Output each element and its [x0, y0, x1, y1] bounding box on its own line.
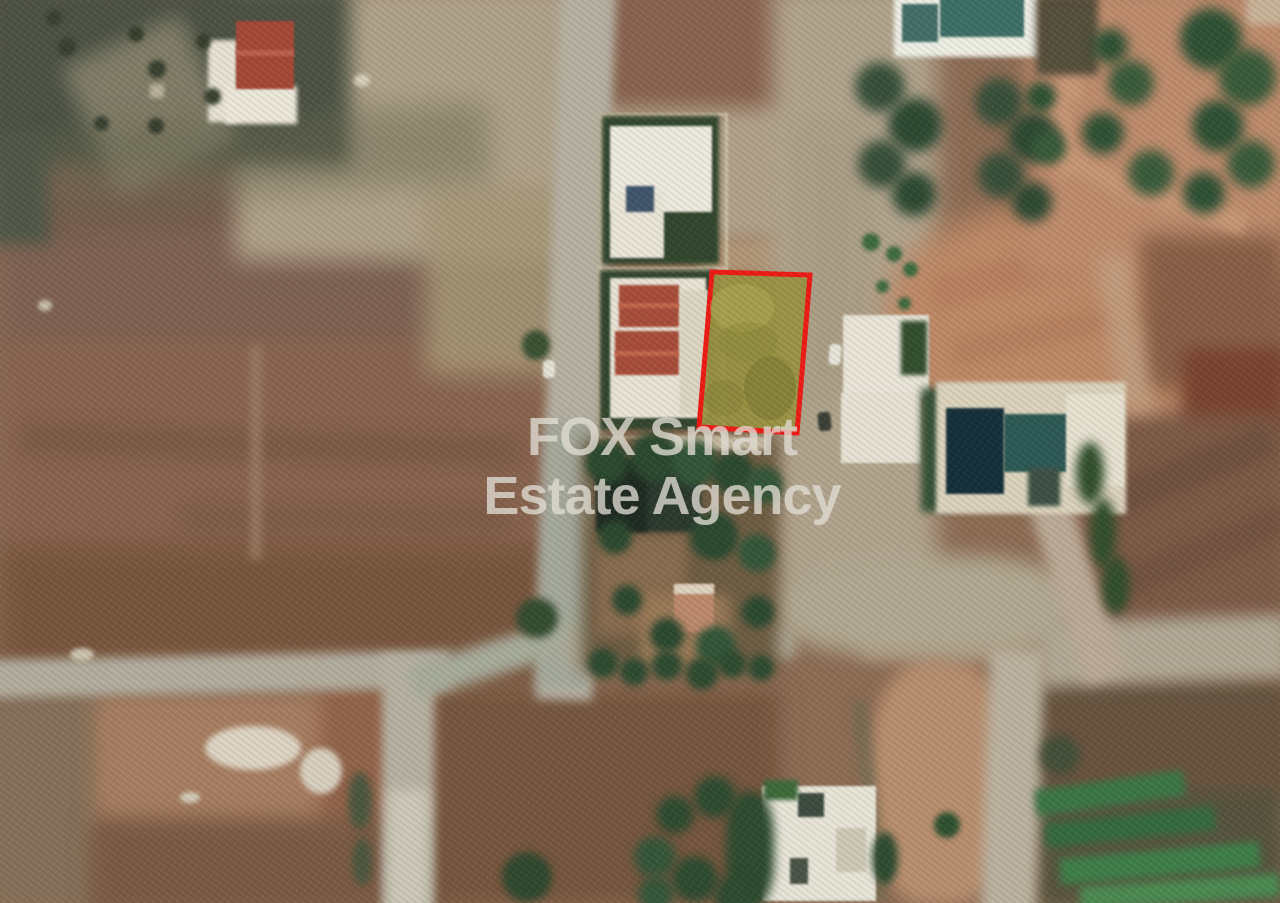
- plot-texture-dark: [718, 322, 778, 362]
- watermark-line-2: Estate Agency: [452, 467, 872, 526]
- watermark: FOX Smart Estate Agency: [452, 408, 872, 526]
- watermark-line-1: FOX Smart: [452, 408, 872, 467]
- satellite-map-photo: FOX Smart Estate Agency: [0, 0, 1280, 903]
